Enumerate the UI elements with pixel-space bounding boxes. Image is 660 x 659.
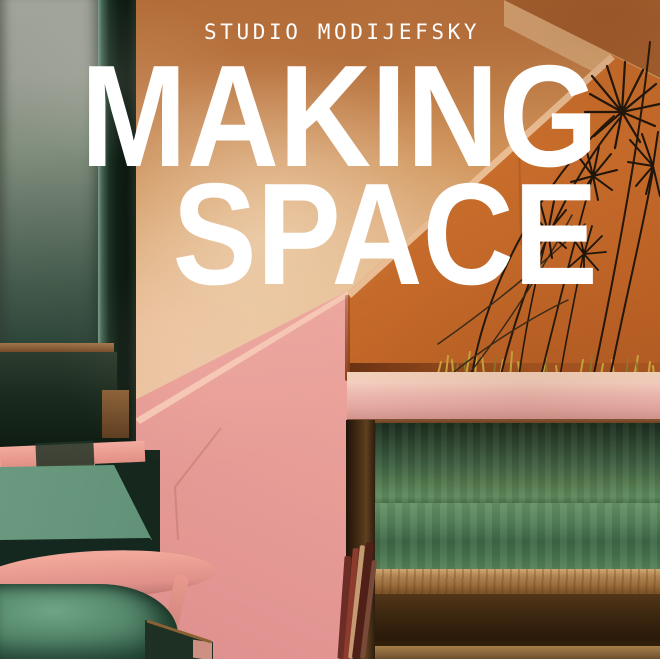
- pink-wall-groove: [175, 428, 221, 540]
- bottom-step-wood-edge: [147, 621, 211, 642]
- book-cover: STUDIO MODIJEFSKY MAKING SPACE: [0, 0, 660, 659]
- title-line-2: SPACE: [173, 162, 598, 307]
